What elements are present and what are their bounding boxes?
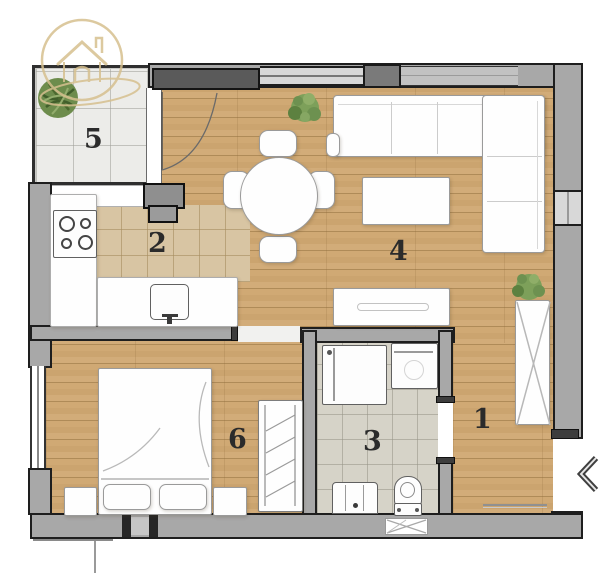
pillow <box>159 484 207 510</box>
sofa-cushion-divider <box>437 102 438 154</box>
room-label-kitchen: 2 <box>148 230 167 257</box>
shower-glass-line <box>333 348 335 401</box>
sofa-cushion-divider <box>487 201 542 202</box>
door-mat-pattern <box>386 519 427 534</box>
bottom-wall <box>30 513 583 539</box>
exterior-step-line-v <box>94 541 96 573</box>
bedroom-door-jamb <box>231 325 238 341</box>
top-window-dark <box>152 68 260 90</box>
entrance-arrow-icon <box>576 455 600 493</box>
bathroom-door-jamb-top <box>436 396 455 403</box>
bed-headboard-line <box>101 478 209 480</box>
right-wall-mid <box>553 224 583 439</box>
pillow <box>103 484 151 510</box>
balcony-door-glazing <box>146 88 162 183</box>
kitchen-cabinet-block <box>148 205 178 223</box>
bathroom-door-jamb-bottom <box>436 457 455 464</box>
top-wall-pier <box>363 64 401 88</box>
sofa-corner-section <box>482 95 545 253</box>
top-window-right <box>401 66 518 86</box>
coffee-table <box>362 177 450 225</box>
sink-faucet <box>353 503 358 508</box>
washing-machine <box>391 343 438 389</box>
room-label-living-room: 4 <box>389 238 408 265</box>
room-label-balcony: 5 <box>84 126 103 153</box>
bathroom-sink-vanity <box>332 482 378 514</box>
toilet-tank <box>394 503 422 516</box>
radiator-hatch <box>259 401 301 510</box>
stove-burner <box>61 238 72 249</box>
entrance-door-leaf <box>483 504 547 506</box>
tv-stand <box>333 288 450 326</box>
bedroom-top-wall <box>30 325 238 341</box>
toilet-hinge <box>415 508 419 512</box>
shower-drain <box>327 350 332 355</box>
kitchen-faucet-spout <box>167 315 172 324</box>
bathroom-left-wall <box>302 330 317 515</box>
dining-chair-bottom <box>259 236 297 263</box>
stove <box>53 210 97 258</box>
bottom-wall-jamb-left <box>122 515 131 537</box>
floor-plan: 5 2 4 1 3 6 <box>0 0 600 580</box>
washer-drum <box>404 360 424 380</box>
house-logo-icon <box>20 10 142 130</box>
entrance-door-jamb-top <box>551 429 579 439</box>
bottom-wall-jamb-right <box>149 515 158 537</box>
bottom-wall-vent <box>131 517 149 535</box>
tv-stand-drawer <box>357 303 429 311</box>
window-glazing-line <box>37 366 39 472</box>
room-label-bathroom: 3 <box>363 428 382 455</box>
stove-burner <box>78 235 93 250</box>
room-label-hallway: 1 <box>473 406 492 433</box>
right-wall-window <box>553 190 583 227</box>
wardrobe-x-symbol <box>516 301 551 426</box>
sofa-back-line <box>537 101 538 249</box>
shower <box>322 345 387 405</box>
exterior-step-line-h <box>33 539 113 541</box>
nightstand-right <box>213 487 247 516</box>
window-glazing-line <box>567 192 569 225</box>
toilet-hinge <box>397 508 401 512</box>
entrance-threshold-line <box>483 507 547 508</box>
bedroom-door-opening <box>238 326 300 342</box>
vanity-door-line <box>345 485 346 511</box>
room-label-bedroom: 6 <box>228 426 247 453</box>
hallway-plant-icon <box>508 270 550 306</box>
bathroom-right-wall-upper <box>438 330 453 402</box>
sofa-cushion-divider <box>391 102 392 154</box>
toilet-bowl-inner <box>400 482 415 498</box>
sofa-cushion-divider <box>487 156 542 157</box>
wardrobe <box>515 300 550 425</box>
door-mat <box>385 518 428 535</box>
living-room-plant-icon <box>284 88 326 130</box>
sofa-armrest <box>326 133 340 157</box>
top-window-center <box>260 66 364 86</box>
radiator <box>258 400 303 512</box>
dining-chair-top <box>259 130 297 157</box>
vanity-door-line <box>363 485 364 511</box>
window-glazing-line <box>401 75 518 76</box>
left-wall-lower <box>28 468 52 515</box>
right-wall-upper <box>553 63 583 193</box>
window-glazing-line <box>260 75 364 77</box>
stove-burner <box>80 218 91 229</box>
washer-panel-line <box>394 351 433 353</box>
bedroom-window <box>30 366 46 472</box>
bathroom-right-wall-lower <box>438 459 453 515</box>
nightstand-left <box>64 487 97 516</box>
bathroom-top-wall <box>300 327 455 343</box>
stove-burner <box>59 216 75 232</box>
round-dining-table <box>240 157 318 235</box>
